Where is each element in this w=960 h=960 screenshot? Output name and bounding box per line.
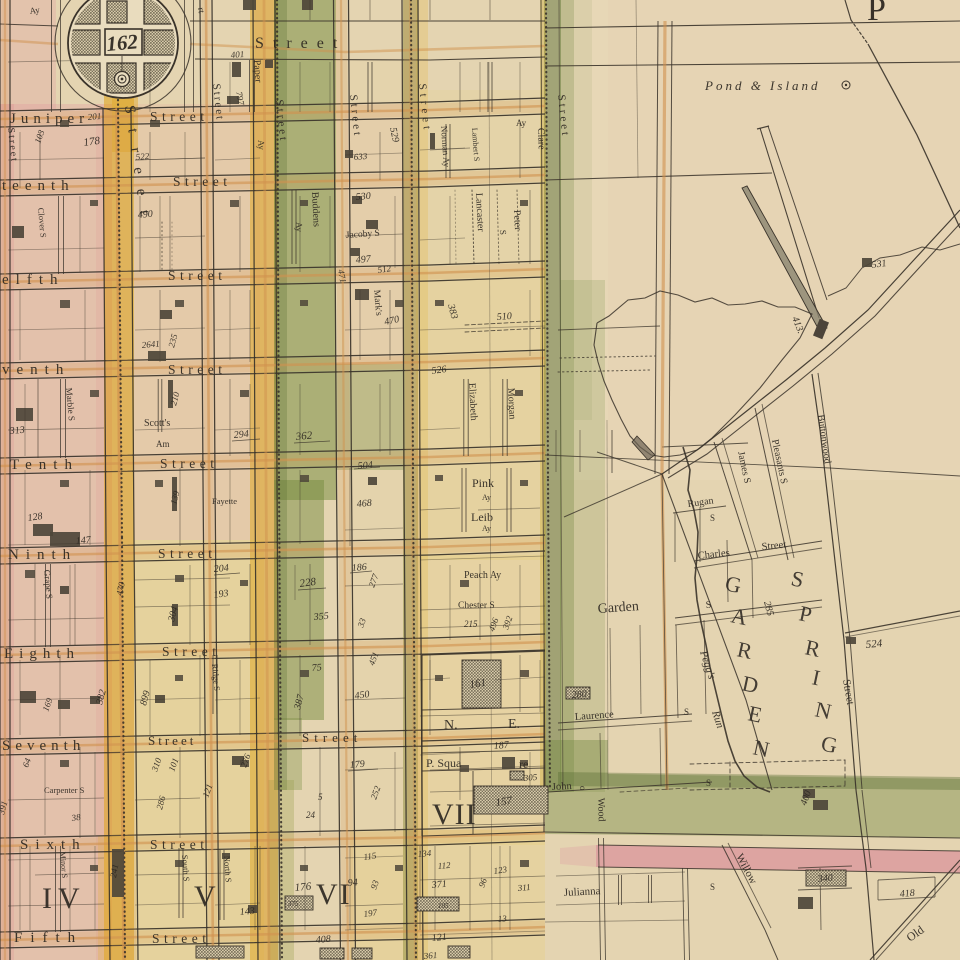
svg-text:161: 161 (469, 677, 487, 691)
svg-text:Street: Street (150, 837, 209, 852)
svg-text:Street: Street (255, 35, 346, 52)
svg-text:112: 112 (437, 860, 451, 871)
svg-text:South S: South S (180, 854, 192, 882)
svg-text:North S: North S (222, 855, 234, 883)
svg-text:Eighth: Eighth (4, 646, 80, 662)
svg-text:418: 418 (899, 888, 915, 900)
svg-text:522: 522 (135, 151, 150, 162)
svg-text:294: 294 (233, 429, 249, 441)
svg-text:105: 105 (438, 902, 449, 910)
svg-text:2641: 2641 (141, 338, 160, 350)
svg-text:123: 123 (493, 864, 508, 876)
svg-text:313: 313 (8, 425, 25, 437)
svg-text:178: 178 (83, 135, 102, 149)
svg-text:121: 121 (431, 932, 447, 944)
svg-text:IV: IV (42, 882, 86, 915)
svg-text:75: 75 (311, 662, 322, 674)
svg-text:24: 24 (306, 810, 316, 820)
svg-text:Street: Street (168, 268, 227, 283)
svg-text:Clare: Clare (535, 128, 547, 151)
svg-text:Peter: Peter (511, 210, 523, 232)
svg-text:P: P (867, 0, 886, 28)
svg-text:340: 340 (816, 873, 833, 885)
svg-text:John: John (552, 781, 573, 793)
svg-text:Wood: Wood (595, 798, 607, 822)
svg-text:Fayette: Fayette (212, 496, 237, 506)
svg-text:S: S (684, 707, 689, 717)
svg-text:362: 362 (294, 430, 313, 444)
svg-text:S: S (498, 230, 508, 236)
svg-text:Morgan: Morgan (505, 388, 518, 420)
svg-text:Garden: Garden (597, 599, 639, 617)
svg-text:176: 176 (294, 881, 312, 894)
svg-text:Peach Ay: Peach Ay (464, 570, 501, 581)
svg-text:401: 401 (230, 49, 244, 60)
svg-text:Julianna: Julianna (564, 885, 601, 899)
svg-text:355: 355 (312, 611, 329, 623)
svg-text:Street: Street (158, 546, 217, 561)
svg-text:510: 510 (496, 311, 512, 323)
svg-text:Lancaster: Lancaster (473, 193, 486, 233)
svg-text:venth: venth (2, 362, 70, 378)
svg-text:Paper: Paper (251, 59, 264, 83)
svg-text:371: 371 (430, 879, 447, 891)
svg-text:Street: Street (173, 174, 232, 189)
svg-text:Scott's: Scott's (144, 418, 170, 429)
svg-text:5: 5 (318, 792, 323, 802)
svg-text:o: o (578, 786, 588, 791)
svg-text:Elizabeth: Elizabeth (466, 383, 479, 421)
svg-text:305: 305 (522, 772, 538, 783)
svg-text:Seventh: Seventh (2, 738, 85, 754)
svg-text:Juniper: Juniper (10, 111, 89, 127)
svg-text:143: 143 (239, 906, 255, 918)
svg-text:215: 215 (464, 619, 478, 629)
svg-text:N.: N. (444, 718, 458, 733)
svg-text:450: 450 (354, 689, 370, 702)
svg-text:Ninth: Ninth (8, 547, 77, 563)
svg-text:Leib: Leib (471, 510, 493, 524)
svg-text:Ay: Ay (482, 524, 491, 533)
svg-text:Street: Street (160, 456, 219, 471)
svg-text:531: 531 (871, 258, 887, 271)
svg-text:Ay: Ay (256, 139, 267, 150)
svg-text:Pond & Island: Pond & Island (704, 78, 821, 93)
svg-text:408: 408 (315, 934, 331, 946)
svg-text:13: 13 (497, 913, 507, 924)
svg-text:530: 530 (355, 191, 371, 203)
svg-text:361: 361 (422, 950, 437, 960)
svg-text:115: 115 (363, 850, 378, 862)
svg-text:179: 179 (349, 759, 365, 771)
svg-text:38: 38 (70, 812, 82, 823)
svg-text:526: 526 (431, 364, 447, 377)
svg-text:S: S (710, 513, 715, 523)
svg-text:Street: Street (302, 730, 362, 745)
svg-text:Buddens: Buddens (309, 192, 322, 228)
svg-text:E.: E. (508, 717, 520, 732)
svg-text:Ay: Ay (482, 493, 491, 502)
svg-text:Sixth: Sixth (20, 837, 87, 853)
svg-text:512: 512 (377, 263, 392, 275)
svg-text:128: 128 (27, 511, 43, 524)
svg-text:S: S (706, 778, 711, 788)
svg-text:524: 524 (865, 638, 883, 651)
svg-text:134: 134 (417, 848, 432, 859)
svg-text:elfth: elfth (2, 272, 65, 288)
svg-text:157: 157 (495, 795, 514, 809)
svg-text:Street: Street (152, 931, 211, 946)
svg-text:187: 187 (493, 740, 510, 752)
svg-text:S: S (710, 882, 715, 892)
svg-text:S: S (705, 600, 712, 611)
svg-text:Carpenter S: Carpenter S (44, 785, 85, 795)
svg-text:VII: VII (432, 798, 477, 831)
svg-text:V: V (194, 880, 216, 913)
svg-text:Ay: Ay (29, 5, 41, 16)
svg-text:Ay: Ay (294, 222, 305, 233)
svg-text:375: 375 (287, 900, 299, 908)
svg-text:311: 311 (516, 882, 531, 893)
svg-text:197: 197 (363, 907, 378, 919)
svg-text:228: 228 (299, 576, 318, 590)
svg-text:204: 204 (213, 563, 229, 575)
svg-text:P. Squa: P. Squa (426, 756, 462, 770)
svg-text:490: 490 (137, 209, 153, 221)
svg-text:VI: VI (316, 878, 352, 911)
svg-text:497: 497 (355, 254, 372, 266)
svg-text:633: 633 (353, 151, 368, 162)
svg-text:Ay: Ay (516, 118, 527, 128)
svg-text:Street: Street (162, 644, 221, 659)
svg-text:Tenth: Tenth (10, 457, 79, 473)
svg-text:280: 280 (571, 689, 587, 701)
svg-text:Chester S: Chester S (458, 601, 495, 611)
svg-text:Fifth: Fifth (14, 930, 83, 946)
svg-text:Street: Street (148, 733, 196, 748)
svg-text:teenth: teenth (2, 178, 75, 194)
svg-text:193: 193 (213, 588, 229, 601)
svg-text:Pink: Pink (472, 476, 494, 490)
svg-text:162: 162 (105, 29, 139, 56)
svg-text:504: 504 (357, 460, 373, 472)
svg-text:Street: Street (150, 109, 209, 124)
svg-text:Street: Street (168, 362, 227, 377)
svg-text:Am: Am (156, 439, 170, 449)
svg-text:468: 468 (356, 498, 372, 510)
svg-text:201: 201 (87, 111, 101, 122)
svg-text:147: 147 (75, 535, 92, 547)
svg-text:re: re (519, 757, 528, 771)
